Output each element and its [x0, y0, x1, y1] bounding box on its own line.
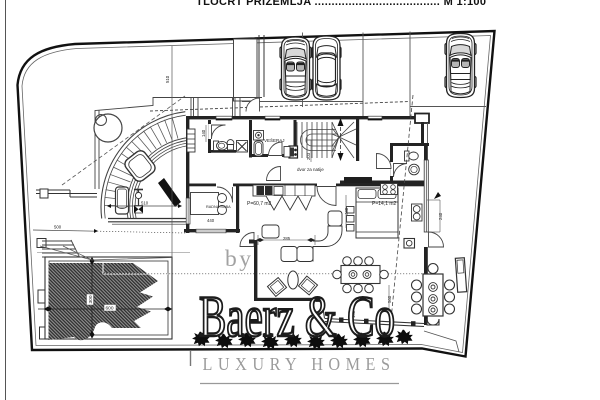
svg-text:P=14,1 m2: P=14,1 m2 — [372, 201, 397, 207]
svg-text:440: 440 — [207, 218, 215, 223]
svg-text:140: 140 — [201, 129, 206, 137]
svg-text:240: 240 — [438, 212, 443, 220]
svg-text:203: 203 — [306, 152, 311, 160]
svg-text:440: 440 — [344, 207, 349, 215]
svg-text:510: 510 — [141, 201, 149, 206]
svg-text:P=60,7 m2: P=60,7 m2 — [247, 201, 272, 207]
svg-text:RADNA SOBA: RADNA SOBA — [206, 205, 231, 209]
svg-text:by: by — [225, 246, 254, 272]
svg-text:500: 500 — [54, 225, 62, 230]
svg-text:TLOCRT PRIZEMLJA .............: TLOCRT PRIZEMLJA .......................… — [196, 0, 486, 8]
svg-text:510: 510 — [165, 75, 170, 83]
svg-text:LUXURY HOMES: LUXURY HOMES — [203, 354, 396, 374]
svg-text:dvor za natije: dvor za natije — [297, 167, 324, 172]
svg-text:300: 300 — [88, 295, 94, 303]
svg-text:600: 600 — [106, 306, 114, 312]
svg-text:VEŠERAJ: VEŠERAJ — [264, 137, 285, 143]
svg-text:Baerz & Co: Baerz & Co — [199, 284, 395, 349]
